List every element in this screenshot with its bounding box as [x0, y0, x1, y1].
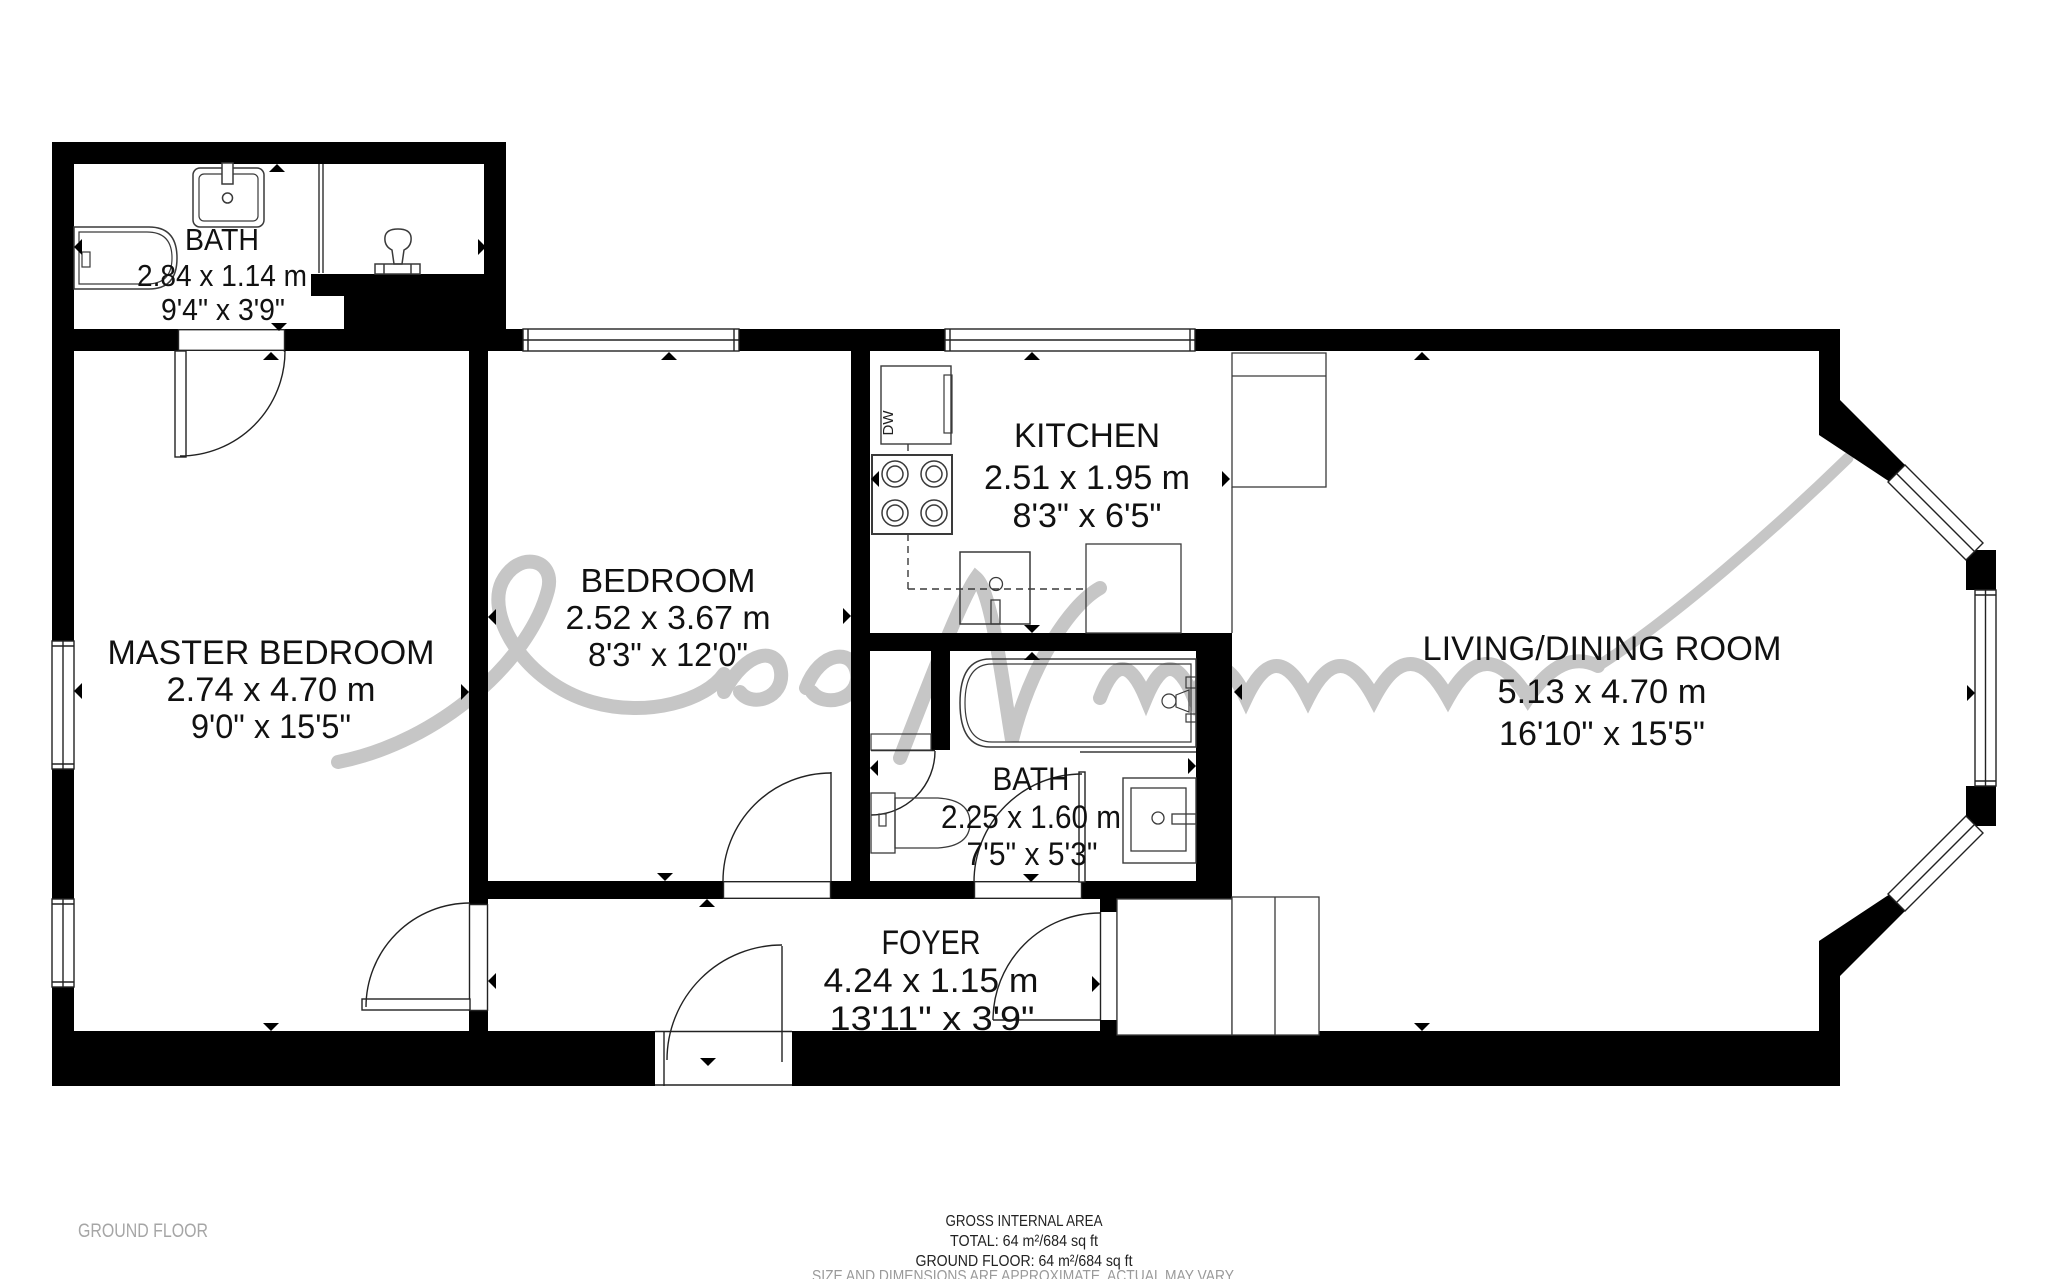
svg-text:2.52 x 3.67 m: 2.52 x 3.67 m [566, 599, 771, 636]
svg-text:9'0" x 15'5": 9'0" x 15'5" [191, 708, 351, 746]
svg-text:KITCHEN: KITCHEN [1014, 417, 1160, 455]
svg-text:TOTAL: 64 m²/684 sq ft: TOTAL: 64 m²/684 sq ft [950, 1233, 1098, 1250]
svg-text:9'4" x 3'9": 9'4" x 3'9" [161, 292, 285, 327]
svg-text:2.74 x 4.70 m: 2.74 x 4.70 m [167, 671, 376, 709]
svg-text:BEDROOM: BEDROOM [581, 562, 756, 599]
svg-text:GROUND FLOOR: GROUND FLOOR [78, 1221, 208, 1242]
svg-text:BATH: BATH [993, 761, 1070, 797]
svg-text:GROSS INTERNAL AREA: GROSS INTERNAL AREA [946, 1213, 1103, 1230]
svg-text:4.24 x 1.15 m: 4.24 x 1.15 m [824, 962, 1039, 1000]
svg-text:FOYER: FOYER [882, 924, 981, 962]
svg-text:MASTER BEDROOM: MASTER BEDROOM [108, 634, 435, 672]
svg-text:2.51 x 1.95 m: 2.51 x 1.95 m [984, 459, 1190, 497]
svg-text:DW: DW [880, 410, 897, 436]
svg-text:SIZE AND DIMENSIONS ARE APPROX: SIZE AND DIMENSIONS ARE APPROXIMATE, ACT… [812, 1268, 1236, 1279]
svg-text:LIVING/DINING ROOM: LIVING/DINING ROOM [1423, 630, 1782, 668]
svg-text:2.84 x 1.14 m: 2.84 x 1.14 m [137, 258, 307, 293]
svg-text:BATH: BATH [185, 222, 259, 257]
svg-text:16'10" x 15'5": 16'10" x 15'5" [1499, 715, 1705, 753]
svg-text:13'11" x 3'9": 13'11" x 3'9" [830, 1000, 1035, 1038]
svg-text:7'5" x 5'3": 7'5" x 5'3" [967, 836, 1098, 872]
svg-text:5.13 x 4.70 m: 5.13 x 4.70 m [1498, 673, 1707, 711]
svg-text:2.25 x 1.60 m: 2.25 x 1.60 m [941, 799, 1121, 835]
svg-text:8'3" x 6'5": 8'3" x 6'5" [1013, 497, 1162, 535]
svg-text:8'3" x 12'0": 8'3" x 12'0" [588, 636, 748, 673]
